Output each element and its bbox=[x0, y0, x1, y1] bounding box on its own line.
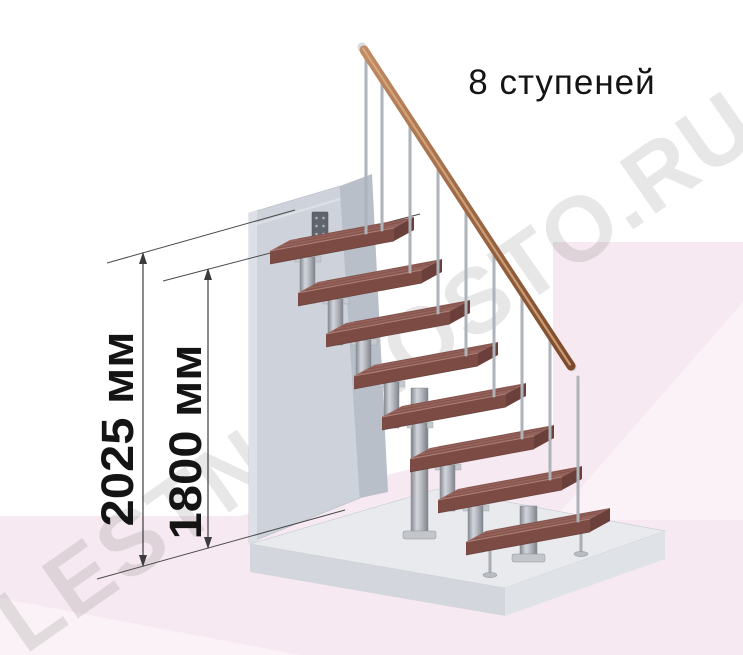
dimension-label-1800: 1800 мм bbox=[160, 345, 211, 540]
column-base-plate bbox=[403, 531, 436, 539]
stair-diagram: LESTNIPROSTO.RU 2025 мм 1800 м bbox=[0, 0, 743, 655]
column-base-plate bbox=[512, 554, 545, 562]
wall-left-edge bbox=[249, 210, 257, 545]
diagram-title: 8 ступеней bbox=[468, 63, 655, 102]
dimension-label-2025: 2025 мм bbox=[92, 332, 143, 527]
